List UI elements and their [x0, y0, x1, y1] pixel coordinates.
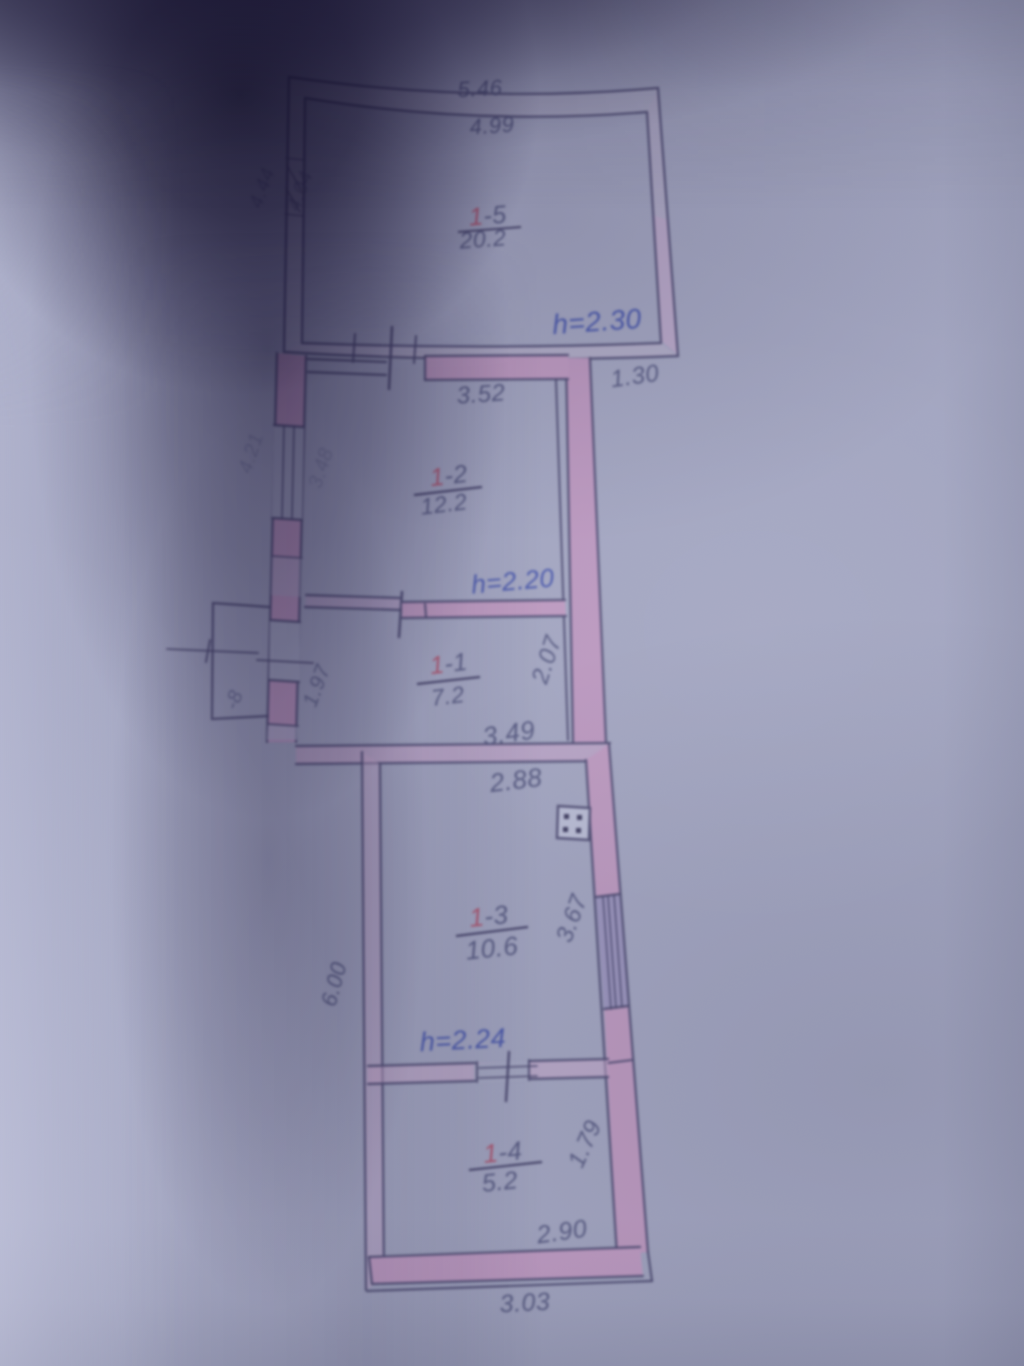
svg-text:4.44: 4.44: [245, 165, 280, 211]
svg-text:h=2.30: h=2.30: [551, 303, 642, 340]
svg-text:20.2: 20.2: [458, 224, 507, 253]
svg-text:1-1: 1-1: [428, 648, 469, 680]
svg-text:7.2: 7.2: [430, 681, 466, 711]
svg-text:2.88: 2.88: [487, 762, 544, 798]
svg-text:12.2: 12.2: [419, 488, 469, 520]
svg-text:5.2: 5.2: [480, 1166, 519, 1198]
svg-text:3.67: 3.67: [551, 890, 593, 946]
svg-text:-8: -8: [221, 687, 248, 712]
svg-text:1-2: 1-2: [428, 460, 469, 492]
svg-text:h=2.24: h=2.24: [419, 1023, 507, 1057]
svg-text:4.21: 4.21: [235, 430, 269, 476]
svg-text:1.97: 1.97: [299, 661, 336, 710]
svg-text:1.30: 1.30: [609, 360, 661, 394]
svg-text:1-3: 1-3: [468, 899, 510, 933]
svg-text:4.99: 4.99: [469, 111, 515, 139]
svg-text:1.79: 1.79: [563, 1116, 607, 1171]
svg-text:2.90: 2.90: [534, 1215, 589, 1250]
svg-text:3.03: 3.03: [499, 1288, 551, 1319]
svg-text:3.48: 3.48: [305, 445, 339, 491]
svg-text:6.00: 6.00: [316, 959, 352, 1009]
svg-text:2.07: 2.07: [526, 631, 567, 688]
svg-text:3.52: 3.52: [456, 379, 506, 409]
svg-text:5.46: 5.46: [457, 75, 503, 102]
svg-text:10.6: 10.6: [464, 930, 519, 965]
svg-text:h=2.20: h=2.20: [470, 562, 556, 599]
